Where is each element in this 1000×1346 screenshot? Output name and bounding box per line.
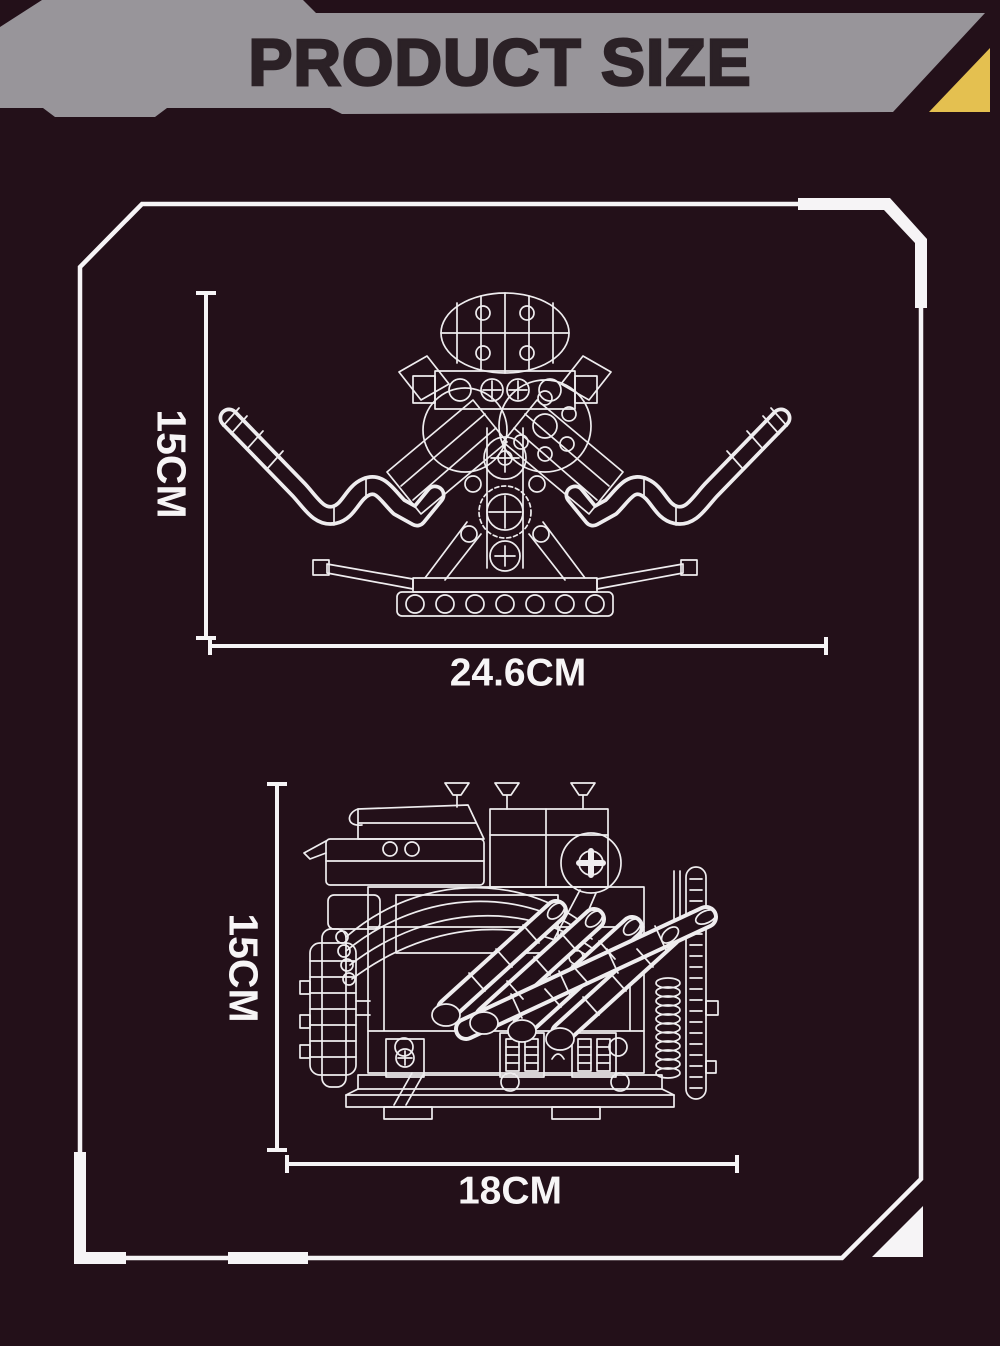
front-view-height-label: 15CM <box>151 409 192 518</box>
side-view-width-label: 18CM <box>458 1172 562 1211</box>
panel-thick-top-right <box>798 198 927 308</box>
page-title: PRODUCT SIZE <box>0 24 1000 100</box>
ribbed-coil <box>656 978 680 1078</box>
display-base <box>313 560 697 616</box>
engine-front-view-drawing <box>223 293 787 616</box>
engine-side-view-drawing <box>300 783 719 1119</box>
page: PRODUCT SIZE 15CM 24.6CM 15CM 18CM <box>0 0 1000 1346</box>
exhaust-pipe-right <box>575 408 787 525</box>
exhaust-pipe-left <box>223 408 435 525</box>
height-dimension-line <box>267 784 287 1150</box>
valve-cover <box>304 805 484 885</box>
panel-thick-bottom-left <box>74 1152 126 1264</box>
panel-border <box>74 198 927 1264</box>
corner-triangle-icon <box>872 1206 923 1257</box>
side-view-height-label: 15CM <box>223 913 264 1022</box>
exhaust-headers <box>432 900 719 1050</box>
air-cleaner <box>441 293 569 373</box>
gear-train <box>461 428 549 571</box>
flywheel <box>300 929 370 1087</box>
height-dimension-line <box>196 293 216 638</box>
front-view-width-label: 24.6CM <box>450 654 587 693</box>
panel-thick-bottom-bar <box>228 1252 308 1264</box>
